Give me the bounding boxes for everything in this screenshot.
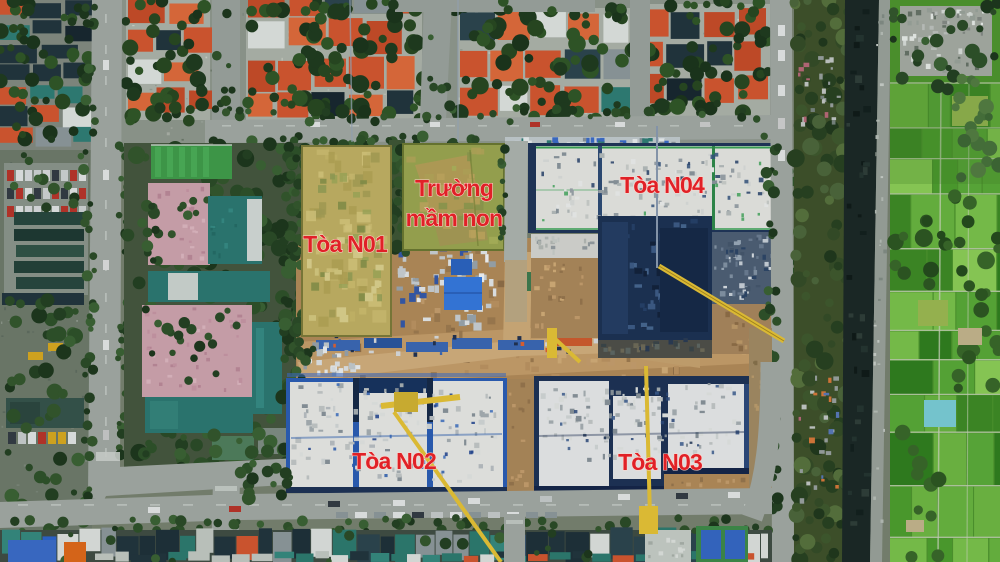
svg-text:Tòa N01: Tòa N01	[303, 231, 388, 257]
svg-text:mầm non: mầm non	[406, 205, 503, 231]
svg-text:Tòa N04: Tòa N04	[620, 172, 705, 198]
svg-text:Tòa N03: Tòa N03	[618, 449, 702, 475]
svg-text:Trường: Trường	[415, 175, 493, 201]
svg-text:Tòa N02: Tòa N02	[352, 448, 436, 474]
